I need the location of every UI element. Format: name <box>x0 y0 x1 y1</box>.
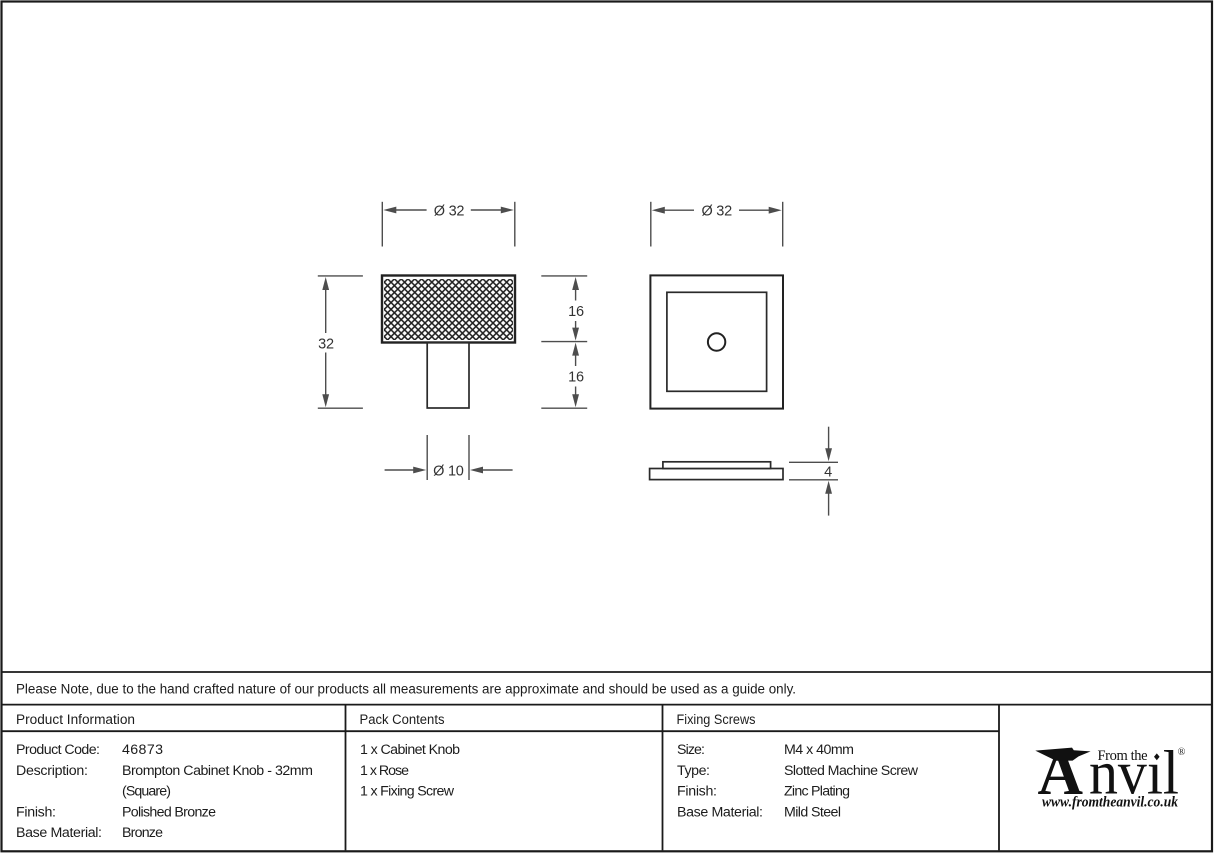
svg-text:Base Material:: Base Material: <box>677 804 763 820</box>
svg-text:16: 16 <box>568 370 584 386</box>
svg-text:Ø 32: Ø 32 <box>434 203 465 219</box>
svg-text:Please Note, due to the hand c: Please Note, due to the hand crafted nat… <box>16 682 796 698</box>
svg-text:Polished Bronze: Polished Bronze <box>122 804 216 820</box>
svg-text:1 x Fixing Screw: 1 x Fixing Screw <box>360 784 455 800</box>
svg-text:Product Code:: Product Code: <box>16 742 100 758</box>
svg-text:(Square): (Square) <box>122 784 171 800</box>
svg-text:Bronze: Bronze <box>122 825 163 841</box>
svg-text:From the: From the <box>1098 748 1148 764</box>
svg-text:4: 4 <box>824 465 832 481</box>
svg-text:46873: 46873 <box>122 742 163 758</box>
svg-text:Slotted Machine Screw: Slotted Machine Screw <box>784 763 919 779</box>
svg-text:Finish:: Finish: <box>16 804 56 820</box>
svg-text:Base Material:: Base Material: <box>16 825 102 841</box>
svg-text:1 x Rose: 1 x Rose <box>360 763 409 779</box>
svg-text:www.fromtheanvil.co.uk: www.fromtheanvil.co.uk <box>1042 795 1178 811</box>
svg-text:Fixing Screws: Fixing Screws <box>677 712 756 728</box>
svg-text:®: ® <box>1178 747 1186 758</box>
svg-text:M4 x 40mm: M4 x 40mm <box>784 742 854 758</box>
svg-text:Description:: Description: <box>16 763 88 779</box>
svg-text:Brompton Cabinet Knob - 32mm: Brompton Cabinet Knob - 32mm <box>122 763 313 779</box>
svg-text:Mild Steel: Mild Steel <box>784 804 841 820</box>
svg-text:Product Information: Product Information <box>16 712 135 728</box>
svg-text:Size:: Size: <box>677 742 705 758</box>
svg-text:16: 16 <box>568 304 584 320</box>
svg-text:Ø 32: Ø 32 <box>701 203 732 219</box>
svg-text:1 x Cabinet Knob: 1 x Cabinet Knob <box>360 742 460 758</box>
svg-text:Finish:: Finish: <box>677 784 717 800</box>
svg-text:32: 32 <box>318 337 334 353</box>
svg-text:Zinc Plating: Zinc Plating <box>784 784 850 800</box>
svg-text:Ø 10: Ø 10 <box>433 463 464 479</box>
svg-text:Pack Contents: Pack Contents <box>360 712 445 728</box>
svg-text:Type:: Type: <box>677 763 710 779</box>
